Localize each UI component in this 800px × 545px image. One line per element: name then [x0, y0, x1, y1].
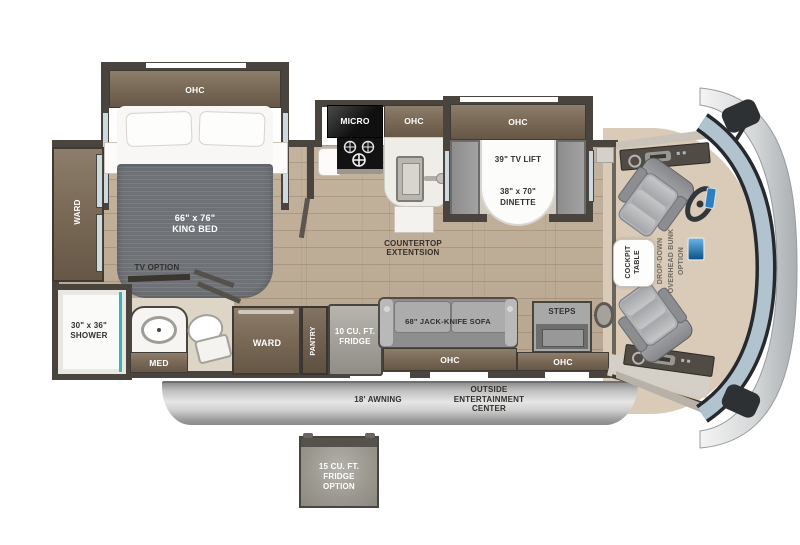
dinette-bench-left: [450, 140, 480, 216]
tv-option-label: TV OPTION: [117, 262, 197, 273]
wall-top-left: [52, 140, 104, 147]
bedroom-ohc-label: OHC: [165, 84, 225, 96]
fridge-10cuft-label: 10 CU. FT. FRIDGE: [325, 326, 385, 348]
pantry-label: PANTRY: [308, 311, 320, 371]
shower-label: 30" x 36" SHOWER: [60, 318, 118, 344]
fridge-option-top-band: [301, 438, 377, 447]
sofa-hinge-right: [507, 306, 513, 312]
countertop-extension-label: COUNTERTOP EXTENTSION: [363, 238, 463, 258]
rear-ward-mirror-1: [96, 154, 103, 208]
sofa-label: 68" JACK-KNIFE SOFA: [383, 316, 513, 328]
dinette-bottom-wall-left: [443, 214, 487, 222]
dinette-ohc-label: OHC: [488, 116, 548, 128]
wall-kitchen-joint: [315, 100, 322, 147]
pillow-left: [125, 111, 192, 147]
rv-floorplan: 18' AWNING OUTSIDE ENTERTAINMENT CENTER …: [0, 0, 800, 545]
pillow-right: [198, 111, 265, 147]
hood-edge-bottom: [616, 371, 712, 416]
bed-slideout-window: [146, 63, 246, 68]
med-label: MED: [139, 357, 179, 369]
tv-lift-label: 39" TV LIFT: [478, 154, 558, 165]
bottom-wall-window-2: [430, 372, 488, 378]
dinette-window: [460, 97, 558, 102]
outside-entertainment-label: OUTSIDE ENTERTAINMENT CENTER: [439, 385, 539, 414]
sofa-hinge-left: [384, 306, 390, 312]
dinette-table: [480, 140, 556, 226]
kitchen-sink-basin: [402, 163, 420, 195]
shower-accent-strip: [119, 292, 122, 372]
king-bed-label: 66" x 76" KING BED: [155, 212, 235, 236]
rear-ward-mirror-2: [96, 214, 103, 272]
vanity-drain: [157, 328, 161, 332]
step-tread: [542, 329, 584, 347]
countertop-extension: [394, 206, 434, 233]
living-ward-label: WARD: [237, 337, 297, 349]
dash-monitor: [688, 238, 704, 260]
living-ward-trim: [238, 310, 294, 314]
steering-hub: [697, 201, 704, 208]
sofa-ohc-label: OHC: [420, 354, 480, 366]
awning-label: 18' AWNING: [338, 394, 418, 405]
kitchen-ohc-label: OHC: [384, 115, 444, 127]
dinette-label: 38" x 70" DINETTE: [478, 186, 558, 208]
windshield-frame: [702, 122, 766, 414]
fridge-option-label: 15 CU. FT. FRIDGE OPTION: [304, 461, 374, 493]
kitchen-partition-wall: [307, 147, 314, 199]
rear-ward-label: WARD: [71, 182, 85, 242]
nightstand-right: [271, 142, 288, 174]
cockpit-table-label: COCKPIT TABLE: [623, 239, 643, 285]
overhead-bunk-label: DROP-DOWN OVERHEAD BUNK OPTION: [655, 216, 689, 306]
cooktop: [337, 138, 383, 174]
microwave-label: MICRO: [330, 115, 380, 127]
